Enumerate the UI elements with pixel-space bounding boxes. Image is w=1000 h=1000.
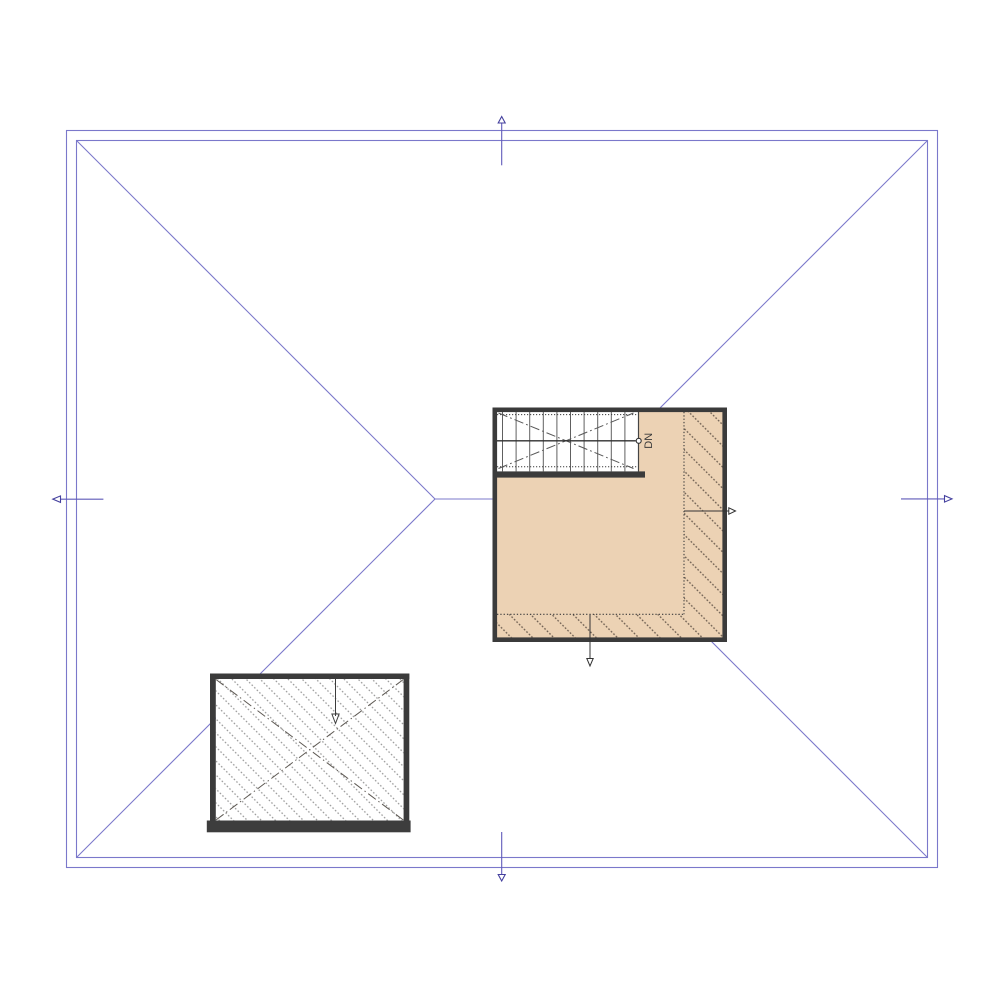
- svg-text:DN: DN: [643, 433, 655, 449]
